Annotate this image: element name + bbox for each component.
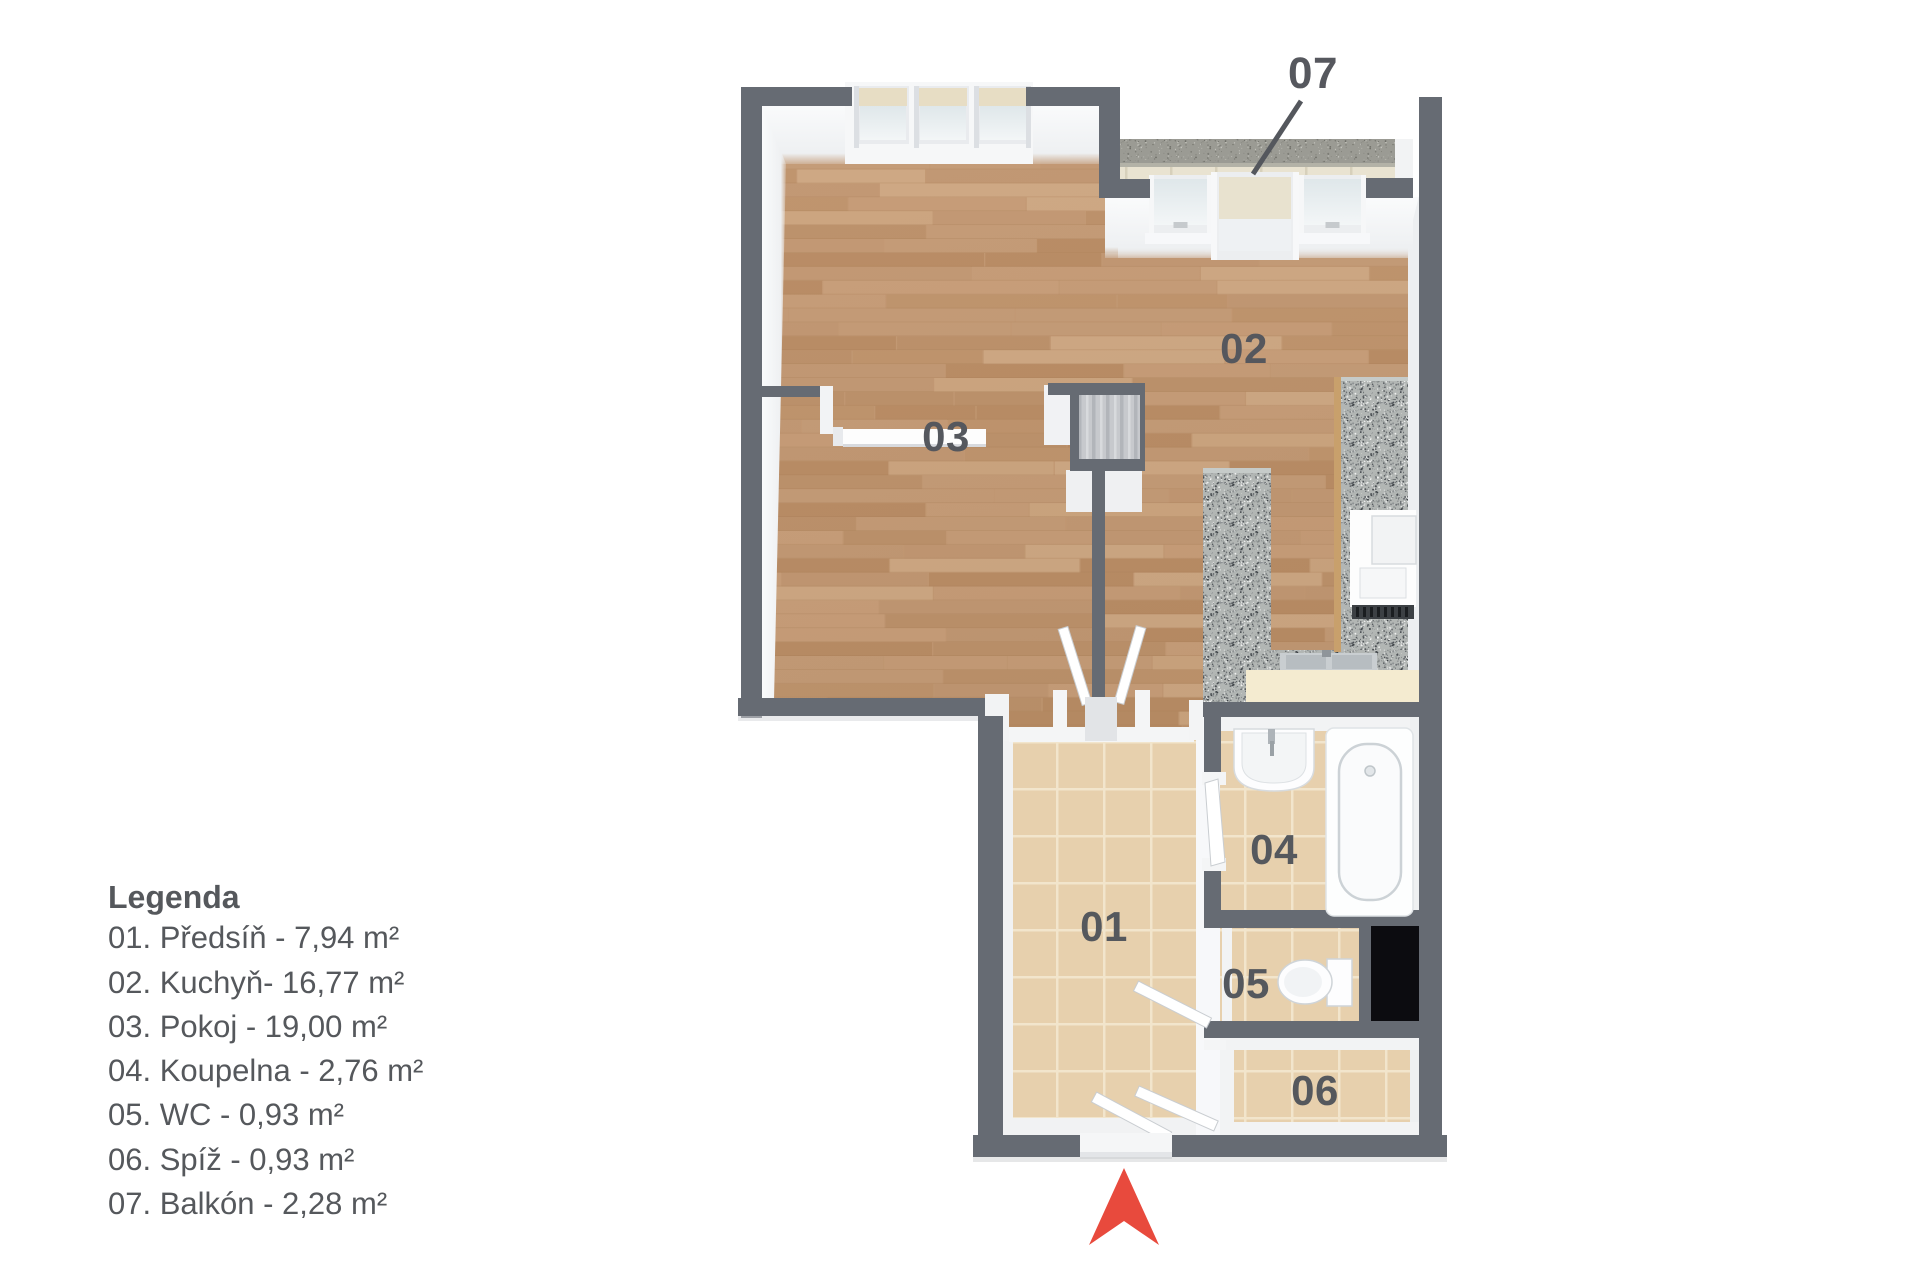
svg-text:03. Pokoj - 19,00 m²: 03. Pokoj - 19,00 m² <box>108 1009 387 1044</box>
svg-text:02: 02 <box>1220 325 1268 372</box>
svg-text:03: 03 <box>922 413 970 460</box>
svg-text:01. Předsíň - 7,94 m²: 01. Předsíň - 7,94 m² <box>108 920 399 955</box>
svg-text:04. Koupelna - 2,76 m²: 04. Koupelna - 2,76 m² <box>108 1053 423 1088</box>
svg-text:07. Balkón - 2,28 m²: 07. Balkón - 2,28 m² <box>108 1186 387 1221</box>
svg-text:05. WC - 0,93 m²: 05. WC - 0,93 m² <box>108 1097 344 1132</box>
svg-text:06. Spíž - 0,93 m²: 06. Spíž - 0,93 m² <box>108 1142 354 1177</box>
svg-text:02. Kuchyň- 16,77 m²: 02. Kuchyň- 16,77 m² <box>108 965 404 1000</box>
svg-text:04: 04 <box>1250 826 1298 873</box>
svg-text:05: 05 <box>1222 960 1270 1007</box>
svg-text:Legenda: Legenda <box>108 879 240 915</box>
svg-text:01: 01 <box>1080 903 1128 950</box>
svg-text:06: 06 <box>1291 1067 1339 1114</box>
svg-text:07: 07 <box>1288 49 1338 98</box>
